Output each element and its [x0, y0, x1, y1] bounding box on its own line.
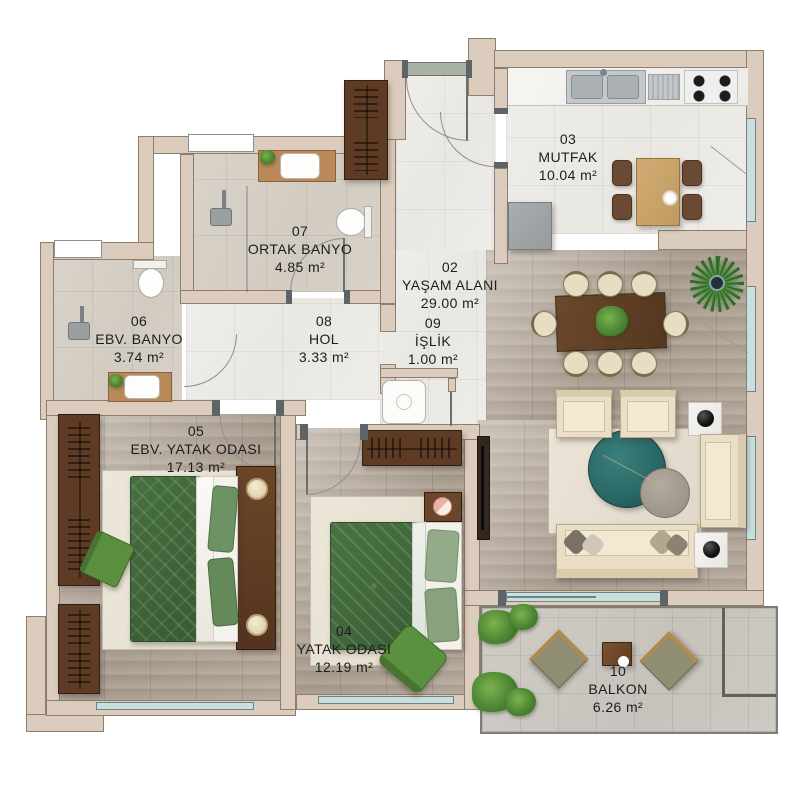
living-window-2	[746, 436, 756, 540]
room-number: 03	[513, 130, 623, 148]
room-label-islik: 09 İŞLİK 1.00 m²	[392, 314, 474, 369]
stove	[684, 70, 738, 104]
room-name: EBV. BANYO	[78, 330, 200, 348]
room-label-mutfak: 03 MUTFAK 10.04 m²	[513, 130, 623, 185]
wardrobe-hangers	[371, 438, 404, 457]
wardrobe-hangers	[420, 438, 453, 457]
armchair	[556, 390, 612, 438]
room-area: 3.74 m²	[78, 348, 200, 366]
nightstand-lamp	[246, 614, 268, 636]
room-name: HOL	[280, 330, 368, 348]
wardrobe	[58, 604, 100, 694]
room-number: 04	[282, 622, 406, 640]
sharedbath-window	[188, 134, 254, 152]
wall-step-left	[138, 136, 154, 258]
wall-kitchen-left-b	[494, 168, 508, 264]
room-area: 12.19 m²	[282, 658, 406, 676]
room-area: 4.85 m²	[232, 258, 368, 276]
toilet-icon	[138, 268, 164, 298]
cabinet-shelf-lines	[354, 142, 378, 171]
slider-jamb-right	[660, 590, 668, 606]
bed-pillow	[424, 529, 460, 583]
dining-chair	[563, 271, 589, 297]
armchair	[620, 390, 676, 438]
bedroom-window	[318, 696, 454, 704]
living-window-1	[746, 286, 756, 392]
room-name: MUTFAK	[513, 148, 623, 166]
wardrobe-hangers	[68, 614, 90, 646]
bedroom-door-jamb-right	[360, 424, 368, 440]
dining-chair	[663, 311, 689, 337]
entry-door-jamb-right	[466, 60, 472, 78]
wall-sharedbath-bottom-a	[180, 290, 290, 304]
dining-chair	[631, 271, 657, 297]
room-name: YAŞAM ALANI	[392, 276, 508, 294]
cabinet-shelf-lines	[354, 89, 378, 118]
room-number: 05	[122, 422, 270, 440]
room-number: 10	[556, 662, 680, 680]
master-door-jamb-left	[212, 400, 220, 416]
room-label-ebv-banyo: 06 EBV. BANYO 3.74 m²	[78, 312, 200, 367]
room-number: 07	[232, 222, 368, 240]
refrigerator	[508, 202, 552, 250]
slider-jamb-left	[498, 590, 506, 606]
sharedbath-sink	[280, 153, 320, 179]
wall-ensuite-left	[40, 242, 54, 420]
room-area: 1.00 m²	[392, 350, 474, 368]
room-area: 10.04 m²	[513, 166, 623, 184]
room-area: 6.26 m²	[556, 698, 680, 716]
balcony-rail-horizontal	[722, 694, 776, 697]
room-label-yatak-odasi: 04 YATAK ODASI 12.19 m²	[282, 622, 406, 677]
wall-utility-stub	[448, 378, 456, 392]
bedroom-door-jamb-left	[300, 424, 308, 440]
wardrobe-hangers	[68, 427, 90, 481]
sharedbath-door-jamb-right	[344, 290, 350, 304]
room-label-hol: 08 HOL 3.33 m²	[280, 312, 368, 367]
kitchen-chair	[682, 160, 702, 186]
table-plate	[662, 190, 678, 206]
dining-chair	[597, 351, 623, 377]
wall-utility-partition	[380, 368, 458, 378]
room-label-ebv-yatak-odasi: 05 EBV. YATAK ODASI 17.13 m²	[122, 422, 270, 477]
room-area: 29.00 m²	[392, 294, 508, 312]
room-area: 3.33 m²	[280, 348, 368, 366]
kitchen-door-jamb-top	[494, 108, 508, 114]
utility-door-leaf	[450, 392, 452, 426]
wall-step-bottom-left-v	[26, 616, 46, 730]
kitchen-chair	[612, 194, 632, 220]
ensuite-window	[54, 240, 102, 258]
room-label-ortak-banyo: 07 ORTAK BANYO 4.85 m²	[232, 222, 368, 277]
sink-drainboard	[648, 74, 680, 100]
dining-chair	[597, 271, 623, 297]
dining-chair	[563, 351, 589, 377]
master-door-leaf	[274, 416, 276, 472]
kitchen-window	[746, 118, 756, 222]
room-name: BALKON	[556, 680, 680, 698]
kitchen-door-jamb-bottom	[494, 162, 508, 168]
sink-basin-left	[571, 75, 603, 99]
ensuite-sink	[124, 375, 160, 399]
sofa-right	[700, 434, 746, 528]
washing-machine-door	[396, 394, 412, 410]
entry-shoe-cabinet	[344, 80, 388, 180]
kitchen-chair	[682, 194, 702, 220]
nightstand-lamp	[433, 497, 452, 516]
balcony-slider-rail	[506, 596, 596, 598]
master-door-jamb-right	[276, 400, 284, 416]
room-number: 06	[78, 312, 200, 330]
wardrobe	[362, 430, 462, 466]
wall-entry-right-block	[468, 38, 496, 96]
entry-door-jamb-left	[402, 60, 408, 78]
room-name: EBV. YATAK ODASI	[122, 440, 270, 458]
room-number: 08	[280, 312, 368, 330]
bed-pillow	[424, 587, 460, 643]
dining-chair	[631, 351, 657, 377]
room-number: 02	[392, 258, 508, 276]
bedroom-door-leaf	[306, 440, 308, 494]
decor-sphere	[703, 541, 720, 558]
room-number: 09	[392, 314, 474, 332]
room-name: YATAK ODASI	[282, 640, 406, 658]
wall-step-bottom-left-h	[26, 714, 104, 732]
living-plant-pot	[709, 275, 725, 291]
wall-sharedbath-left	[180, 154, 194, 304]
bed-duvet	[130, 476, 202, 642]
shower-head-icon	[210, 208, 232, 226]
room-name: ORTAK BANYO	[232, 240, 368, 258]
room-area: 17.13 m²	[122, 458, 270, 476]
ottoman	[640, 468, 690, 518]
room-label-balkon: 10 BALKON 6.26 m²	[556, 662, 680, 717]
wall-kitchen-top	[494, 50, 764, 68]
master-bedroom-window	[96, 702, 254, 710]
sink-faucet	[600, 69, 607, 76]
sharedbath-door-jamb-left	[286, 290, 292, 304]
wardrobe-hangers	[68, 653, 90, 685]
dining-chair	[531, 311, 557, 337]
floor-plan: 02 YAŞAM ALANI 29.00 m² 03 MUTFAK 10.04 …	[0, 0, 800, 800]
room-label-yasam-alani: 02 YAŞAM ALANI 29.00 m²	[392, 258, 508, 313]
entry-door-sill	[406, 62, 468, 76]
balcony-rail-vertical	[722, 608, 725, 696]
tv-screen	[481, 446, 484, 530]
sink-basin-right	[607, 75, 639, 99]
decor-sphere	[697, 410, 714, 427]
nightstand-lamp	[246, 478, 268, 500]
room-name: İŞLİK	[392, 332, 474, 350]
